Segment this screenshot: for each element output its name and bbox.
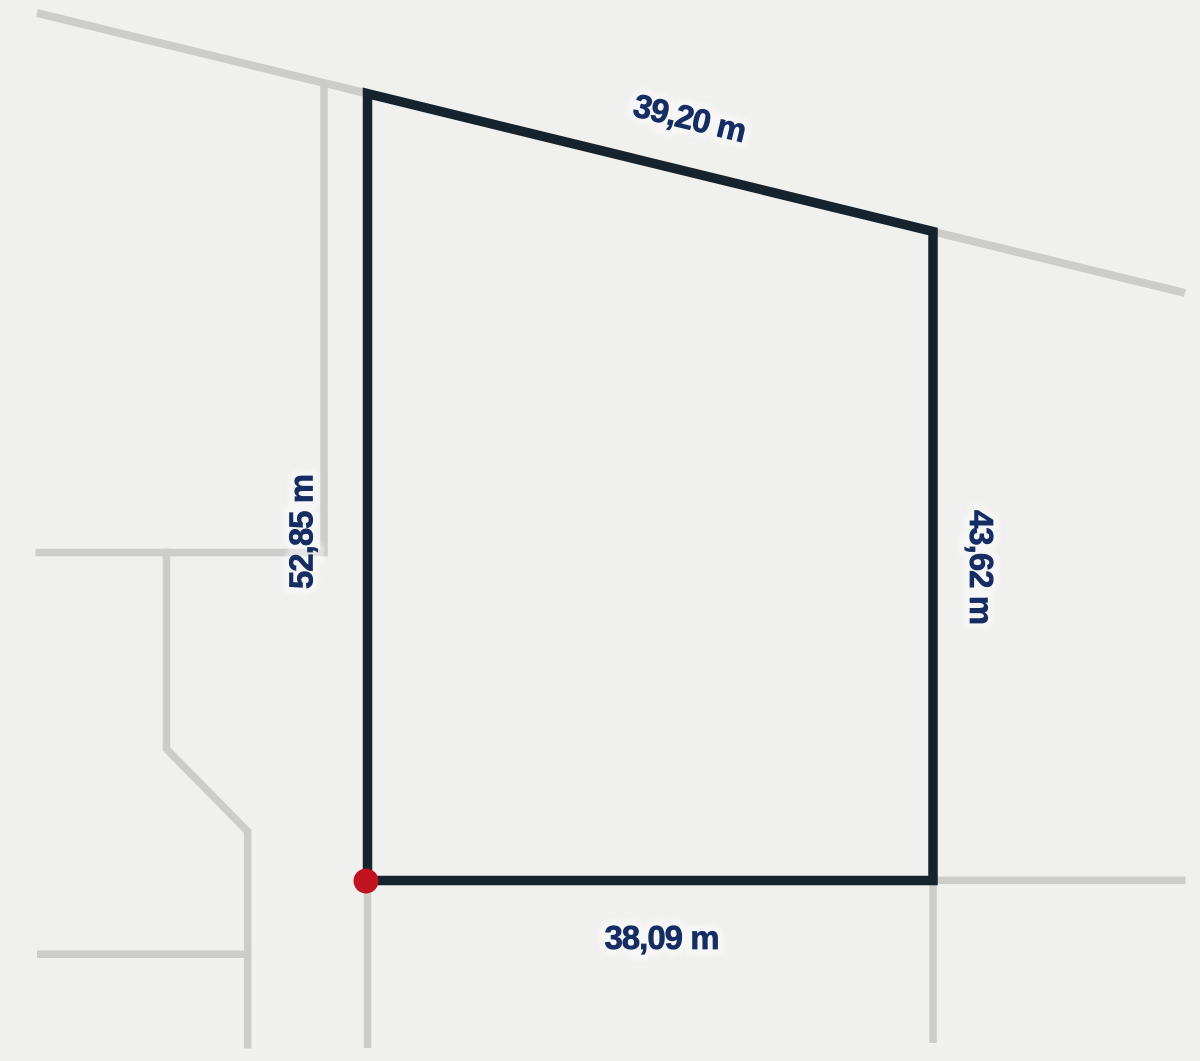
svg-text:43,62 m: 43,62 m (963, 510, 1000, 624)
svg-text:38,09 m: 38,09 m (604, 919, 718, 956)
svg-text:52,85 m: 52,85 m (283, 475, 320, 589)
